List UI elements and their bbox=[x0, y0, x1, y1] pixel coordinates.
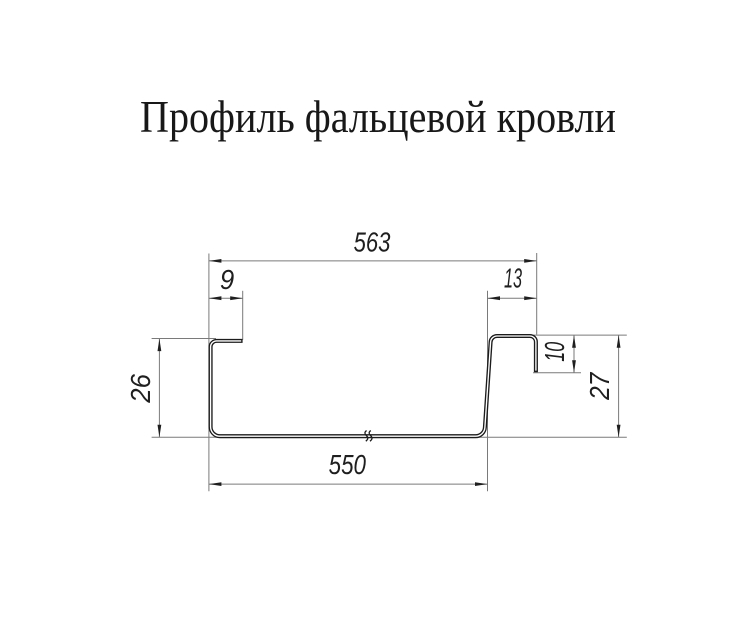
svg-text:9: 9 bbox=[220, 264, 234, 295]
svg-text:10: 10 bbox=[539, 342, 570, 362]
svg-text:563: 563 bbox=[354, 227, 391, 258]
svg-text:13: 13 bbox=[504, 262, 522, 294]
svg-text:27: 27 bbox=[584, 371, 616, 400]
svg-text:550: 550 bbox=[329, 450, 366, 481]
svg-text:Профиль фальцевой кровли: Профиль фальцевой кровли bbox=[140, 93, 616, 143]
svg-text:26: 26 bbox=[125, 374, 156, 404]
